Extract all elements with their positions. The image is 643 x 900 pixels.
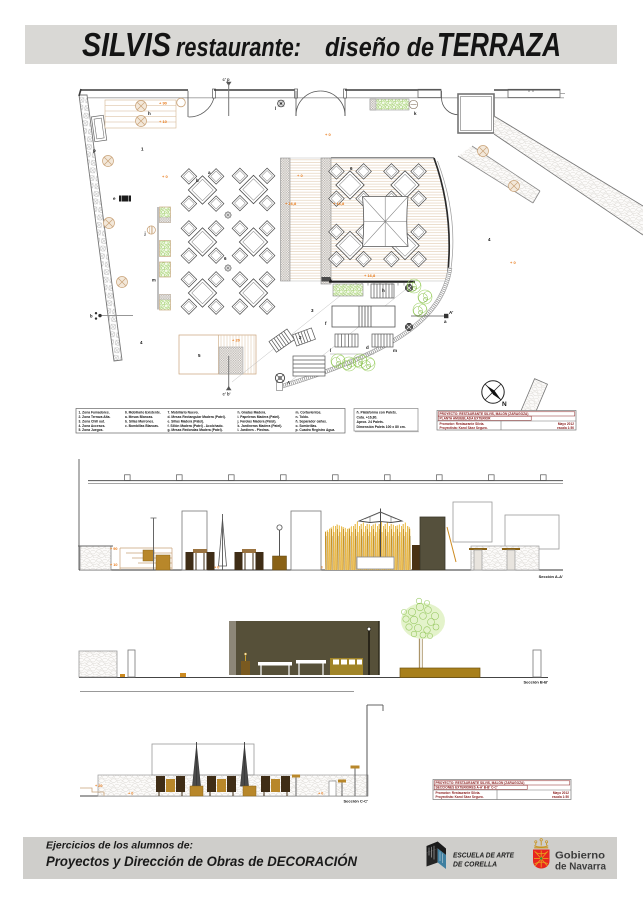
svg-text:3: 3: [311, 308, 314, 313]
svg-text:TERRAZA: TERRAZA: [437, 26, 561, 63]
svg-text:SECCIONES EXTERIORES A-A' B-B: SECCIONES EXTERIORES A-A' B-B' C-C': [436, 786, 498, 790]
svg-text:escala 1:50: escala 1:50: [552, 795, 569, 799]
svg-text:Sección A-A': Sección A-A': [539, 574, 563, 579]
svg-text:o. Sombrillas.: o. Sombrillas.: [296, 424, 318, 428]
svg-text:l: l: [330, 348, 331, 353]
svg-text:j. Farolas Madera (Patel).: j. Farolas Madera (Patel).: [237, 419, 277, 423]
svg-text:Sección C-C': Sección C-C': [343, 799, 368, 804]
svg-text:ñ. Separador cañas.: ñ. Separador cañas.: [296, 419, 327, 423]
svg-text:f: f: [325, 321, 327, 326]
svg-text:b: b: [196, 178, 199, 183]
svg-text:SILVIS: SILVIS: [82, 26, 171, 63]
svg-text:e: e: [113, 196, 116, 201]
svg-text:p: p: [93, 148, 96, 153]
svg-text:l. Jardines - Piedras.: l. Jardines - Piedras.: [238, 428, 270, 432]
svg-text:diseño de: diseño de: [325, 34, 434, 62]
svg-text:+ 0: + 0: [214, 566, 219, 570]
svg-text:Ejercicios de los alumnos de:: Ejercicios de los alumnos de:: [46, 840, 193, 852]
svg-text:+ 0: + 0: [128, 792, 133, 796]
svg-text:de Navarra: de Navarra: [555, 861, 606, 873]
svg-text:4. Zona Accesos.: 4. Zona Accesos.: [79, 424, 106, 428]
svg-text:A': A': [449, 310, 453, 315]
svg-text:a: a: [444, 319, 447, 324]
svg-text:escala 1:50: escala 1:50: [557, 426, 574, 430]
svg-text:h: h: [382, 288, 385, 293]
svg-text:+ 10: + 10: [110, 563, 118, 567]
svg-text:+ 0: + 0: [510, 260, 516, 265]
svg-text:4: 4: [488, 237, 491, 242]
svg-text:+ 16,8: + 16,8: [333, 201, 345, 206]
svg-text:Proyectista: Karol Sáez Seguro: Proyectista: Karol Sáez Seguro.: [436, 795, 484, 799]
svg-text:g. Mesas Redondas Madera (Pate: g. Mesas Redondas Madera (Patel).: [168, 428, 223, 432]
svg-text:i. Papeleras Madera (Patel).: i. Papeleras Madera (Patel).: [238, 415, 281, 419]
svg-text:h. Gradas Madera.: h. Gradas Madera.: [238, 411, 267, 415]
svg-text:c. Bombillas Blancas.: c. Bombillas Blancas.: [125, 424, 159, 428]
svg-text:6. Mobiliario Existente.: 6. Mobiliario Existente.: [125, 411, 161, 415]
svg-text:+ 0: + 0: [318, 792, 323, 796]
svg-text:b: b: [90, 314, 93, 319]
svg-text:1. Zona Fumadores.: 1. Zona Fumadores.: [79, 411, 110, 415]
svg-text:c' p: c' p: [223, 77, 230, 82]
svg-text:3. Zona Chill out.: 3. Zona Chill out.: [79, 419, 106, 423]
svg-text:PROYECTO: RESTAURANTE SILVIS,: PROYECTO: RESTAURANTE SILVIS, MALÓN (ZAR…: [436, 780, 525, 785]
svg-text:2. Zona Terraza Alta.: 2. Zona Terraza Alta.: [79, 415, 111, 419]
svg-text:m: m: [152, 278, 156, 283]
svg-text:b. Sillas Marrones.: b. Sillas Marrones.: [125, 419, 154, 423]
svg-text:p. Cuadro Registro Agua.: p. Cuadro Registro Agua.: [296, 428, 336, 432]
svg-text:PLANTA AMUEBLADA EXTERIOR: PLANTA AMUEBLADA EXTERIOR: [440, 417, 492, 421]
svg-text:f. Sillón Madera (Patel) - Aco: f. Sillón Madera (Patel) - Acolchado.: [168, 424, 224, 428]
svg-text:ESCUELA DE ARTE: ESCUELA DE ARTE: [453, 851, 514, 860]
svg-text:h: h: [148, 111, 151, 116]
svg-text:ñ. Plataforma con Palets.: ñ. Plataforma con Palets.: [357, 411, 397, 415]
svg-text:e. Sillas Madera (Patel).: e. Sillas Madera (Patel).: [168, 419, 205, 423]
svg-text:a. Mesas Blancas.: a. Mesas Blancas.: [125, 415, 153, 419]
svg-text:Sección B-B': Sección B-B': [523, 680, 548, 685]
svg-text:Aprox. 24 Palets.: Aprox. 24 Palets.: [357, 420, 384, 424]
svg-text:n. Toldo.: n. Toldo.: [296, 415, 310, 419]
svg-text:+ 0: + 0: [325, 132, 331, 137]
svg-text:l: l: [275, 106, 276, 111]
svg-text:N: N: [502, 401, 507, 408]
svg-text:+ 0: + 0: [162, 174, 168, 179]
svg-text:+ 16,8: + 16,8: [364, 273, 376, 278]
svg-text:+ 90: + 90: [110, 547, 118, 551]
svg-text:+ 0: + 0: [297, 173, 303, 178]
svg-text:Proyectista: Karol Sáez Seguro: Proyectista: Karol Sáez Seguro.: [440, 426, 488, 430]
svg-text:d: d: [366, 345, 369, 350]
svg-text:4: 4: [140, 340, 143, 345]
svg-text:Proyectos y Dirección de Obras: Proyectos y Dirección de Obras de DECORA…: [46, 852, 358, 869]
svg-text:Cota. +16,80.: Cota. +16,80.: [357, 415, 378, 419]
svg-text:c' b': c' b': [223, 392, 231, 397]
svg-text:k. Jardineras Madera (Patel).: k. Jardineras Madera (Patel).: [238, 424, 283, 428]
svg-text:k: k: [414, 111, 417, 116]
svg-text:7. Mobiliario Nuevo.: 7. Mobiliario Nuevo.: [168, 411, 199, 415]
svg-text:+ 20: + 20: [232, 338, 241, 343]
svg-text:6: 6: [224, 256, 227, 261]
svg-text:m: m: [393, 348, 397, 353]
svg-text:m. Cortavientos.: m. Cortavientos.: [296, 411, 322, 415]
svg-text:+ 16,8: + 16,8: [285, 201, 297, 206]
svg-text:j: j: [144, 231, 146, 236]
svg-text:DE CORELLA: DE CORELLA: [453, 860, 497, 869]
svg-text:+ 90: + 90: [159, 101, 168, 106]
svg-text:+ 20: + 20: [95, 784, 103, 788]
svg-text:5. Zona Juegos.: 5. Zona Juegos.: [79, 428, 104, 432]
svg-text:Dimensión Palets 100 x 80 cm.: Dimensión Palets 100 x 80 cm.: [357, 425, 406, 429]
svg-text:1: 1: [141, 147, 144, 152]
svg-text:restaurante:: restaurante:: [176, 34, 301, 62]
svg-text:PROYECTO: RESTAURANTE SILVIS,: PROYECTO: RESTAURANTE SILVIS, MALÓN (ZAR…: [440, 411, 529, 416]
svg-text:+ 10: + 10: [159, 119, 168, 124]
svg-text:d. Mesas Rectangular Madera (P: d. Mesas Rectangular Madera (Patel).: [168, 415, 226, 419]
